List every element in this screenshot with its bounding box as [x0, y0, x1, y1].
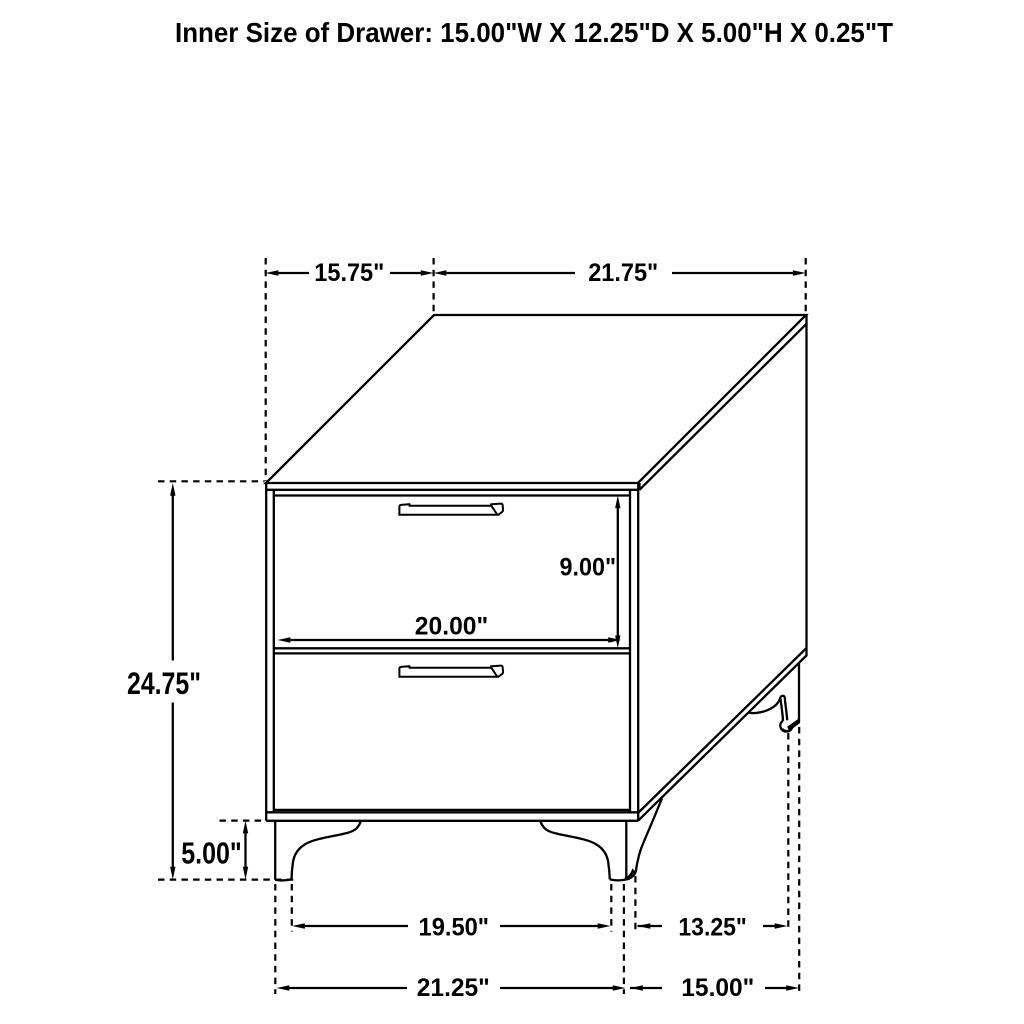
svg-text:9.00": 9.00": [560, 553, 617, 581]
svg-text:13.25": 13.25": [678, 914, 747, 942]
svg-text:5.00": 5.00": [181, 836, 242, 870]
svg-text:Inner Size of Drawer: 15.00"W: Inner Size of Drawer: 15.00"W X 12.25"D …: [175, 16, 893, 48]
svg-text:21.25": 21.25": [417, 974, 490, 1002]
svg-text:19.50": 19.50": [419, 914, 490, 942]
svg-text:21.75": 21.75": [588, 259, 658, 287]
svg-text:15.00": 15.00": [681, 974, 754, 1002]
svg-text:20.00": 20.00": [415, 613, 489, 641]
svg-text:15.75": 15.75": [314, 259, 384, 287]
svg-text:24.75": 24.75": [127, 665, 201, 701]
